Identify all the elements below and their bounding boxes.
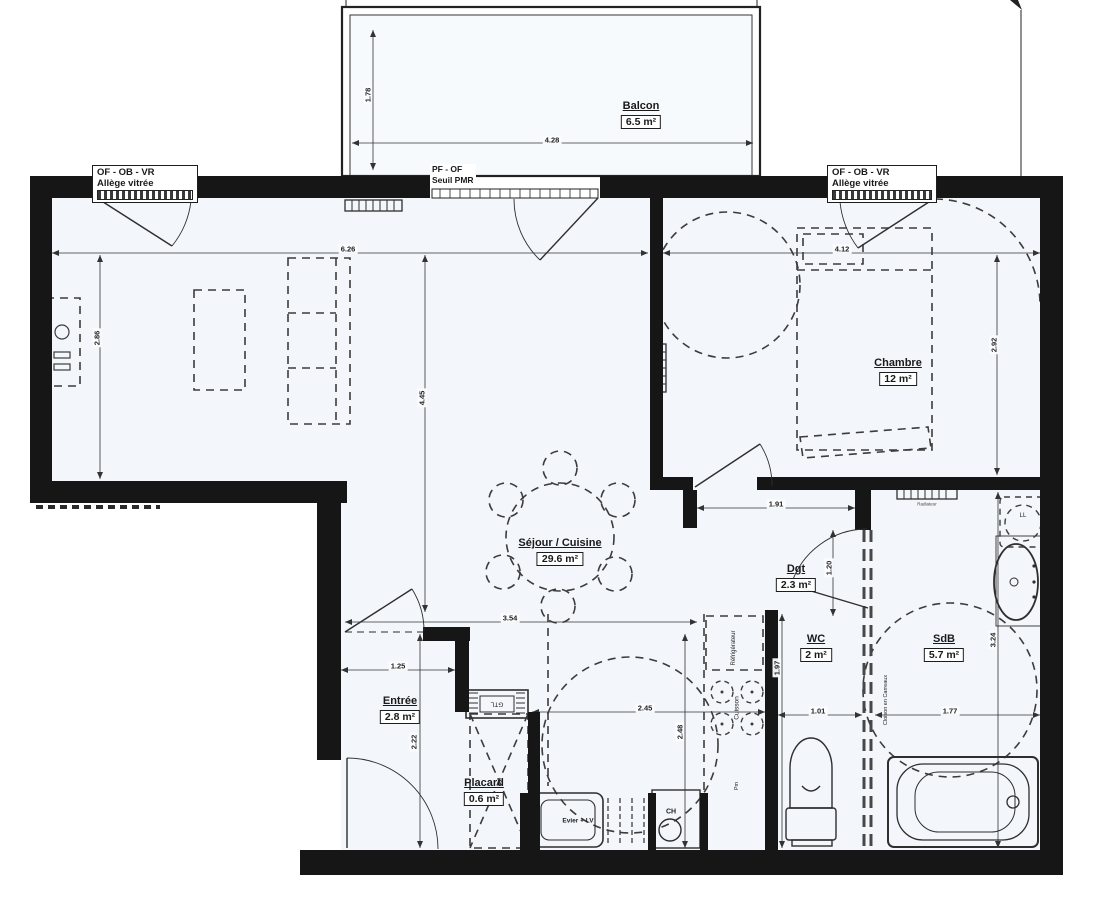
pm-label: Pm bbox=[734, 782, 740, 790]
room-name-wc: WC bbox=[800, 633, 832, 645]
dim-cuisine-h: 2.48 bbox=[676, 723, 685, 742]
dim-balcon-w: 4.28 bbox=[543, 136, 562, 145]
room-area-sdb: 5.7 m² bbox=[924, 648, 964, 662]
room-area-chambre: 12 m² bbox=[879, 372, 916, 386]
room-label-placard: Placard 0.6 m² bbox=[464, 777, 504, 807]
window-glazing-icon bbox=[97, 190, 193, 200]
cooktop-label: Cuisson bbox=[734, 696, 741, 719]
dim-dgt-h: 1.20 bbox=[825, 559, 834, 578]
radiator-label: Radiateur bbox=[917, 502, 937, 507]
dim-balcon-h: 1.78 bbox=[364, 86, 373, 105]
dim-cuisine-w: 2.45 bbox=[636, 704, 655, 713]
dim-chambre-w: 4.12 bbox=[833, 245, 852, 254]
window-left-type: OF - OB - VR bbox=[97, 167, 193, 178]
room-label-sdb: SdB 5.7 m² bbox=[924, 633, 964, 663]
room-name-placard: Placard bbox=[464, 777, 504, 789]
sink-label: Evier + LV bbox=[562, 818, 593, 825]
room-name-dgt: Dgt bbox=[776, 563, 816, 575]
room-area-placard: 0.6 m² bbox=[464, 792, 504, 806]
dim-entree-w: 1.25 bbox=[389, 662, 408, 671]
balcony-door-label: PF - OF Seuil PMR bbox=[430, 164, 476, 185]
room-label-wc: WC 2 m² bbox=[800, 633, 832, 663]
water-heater-label: CH bbox=[666, 809, 676, 816]
partition-label: Cloison en Carreaux bbox=[883, 675, 889, 725]
dim-sejour-w: 6.26 bbox=[339, 245, 358, 254]
dim-sejour-s: 3.54 bbox=[501, 614, 520, 623]
window-right-type: OF - OB - VR bbox=[832, 167, 932, 178]
dim-entree-h: 2.22 bbox=[410, 733, 419, 752]
window-left-sill: Allège vitrée bbox=[97, 178, 193, 189]
refrigerator-label: Réfrigérateur bbox=[731, 630, 737, 665]
window-right-sill: Allège vitrée bbox=[832, 178, 932, 189]
room-area-sejour: 29.6 m² bbox=[537, 552, 583, 566]
window-label-right: OF - OB - VR Allège vitrée bbox=[827, 165, 937, 203]
room-label-chambre: Chambre 12 m² bbox=[874, 357, 922, 387]
room-name-balcon: Balcon bbox=[621, 100, 661, 112]
room-area-wc: 2 m² bbox=[800, 648, 832, 662]
dim-sejour-h: 2.86 bbox=[93, 329, 102, 348]
balcony-door-sill: Seuil PMR bbox=[432, 175, 474, 186]
room-area-entree: 2.8 m² bbox=[380, 710, 420, 724]
room-label-sejour: Séjour / Cuisine 29.6 m² bbox=[518, 537, 601, 567]
dim-wc-h: 1.97 bbox=[773, 659, 782, 678]
room-name-sdb: SdB bbox=[924, 633, 964, 645]
floorplan: Balcon 6.5 m² Séjour / Cuisine 29.6 m² C… bbox=[0, 0, 1095, 900]
room-name-entree: Entrée bbox=[380, 695, 420, 707]
window-glazing-icon bbox=[832, 190, 932, 200]
balcony-door-type: PF - OF bbox=[432, 164, 474, 175]
room-label-entree: Entrée 2.8 m² bbox=[380, 695, 420, 725]
gtl-label: GTL bbox=[491, 701, 504, 708]
room-name-chambre: Chambre bbox=[874, 357, 922, 369]
dim-sdb-w: 1.77 bbox=[941, 707, 960, 716]
room-label-dgt: Dgt 2.3 m² bbox=[776, 563, 816, 593]
room-label-balcon: Balcon 6.5 m² bbox=[621, 100, 661, 130]
dim-dgt-w: 1.91 bbox=[767, 500, 786, 509]
window-label-left: OF - OB - VR Allège vitrée bbox=[92, 165, 198, 203]
dim-sdb-h: 3.24 bbox=[989, 631, 998, 650]
washer-label: LL bbox=[1020, 513, 1027, 519]
room-area-balcon: 6.5 m² bbox=[621, 115, 661, 129]
dim-chambre-h: 2.92 bbox=[990, 336, 999, 355]
dim-sejour-mid-h: 4.45 bbox=[418, 389, 427, 408]
room-area-dgt: 2.3 m² bbox=[776, 578, 816, 592]
dim-wc-w: 1.01 bbox=[809, 707, 828, 716]
room-name-sejour: Séjour / Cuisine bbox=[518, 537, 601, 549]
